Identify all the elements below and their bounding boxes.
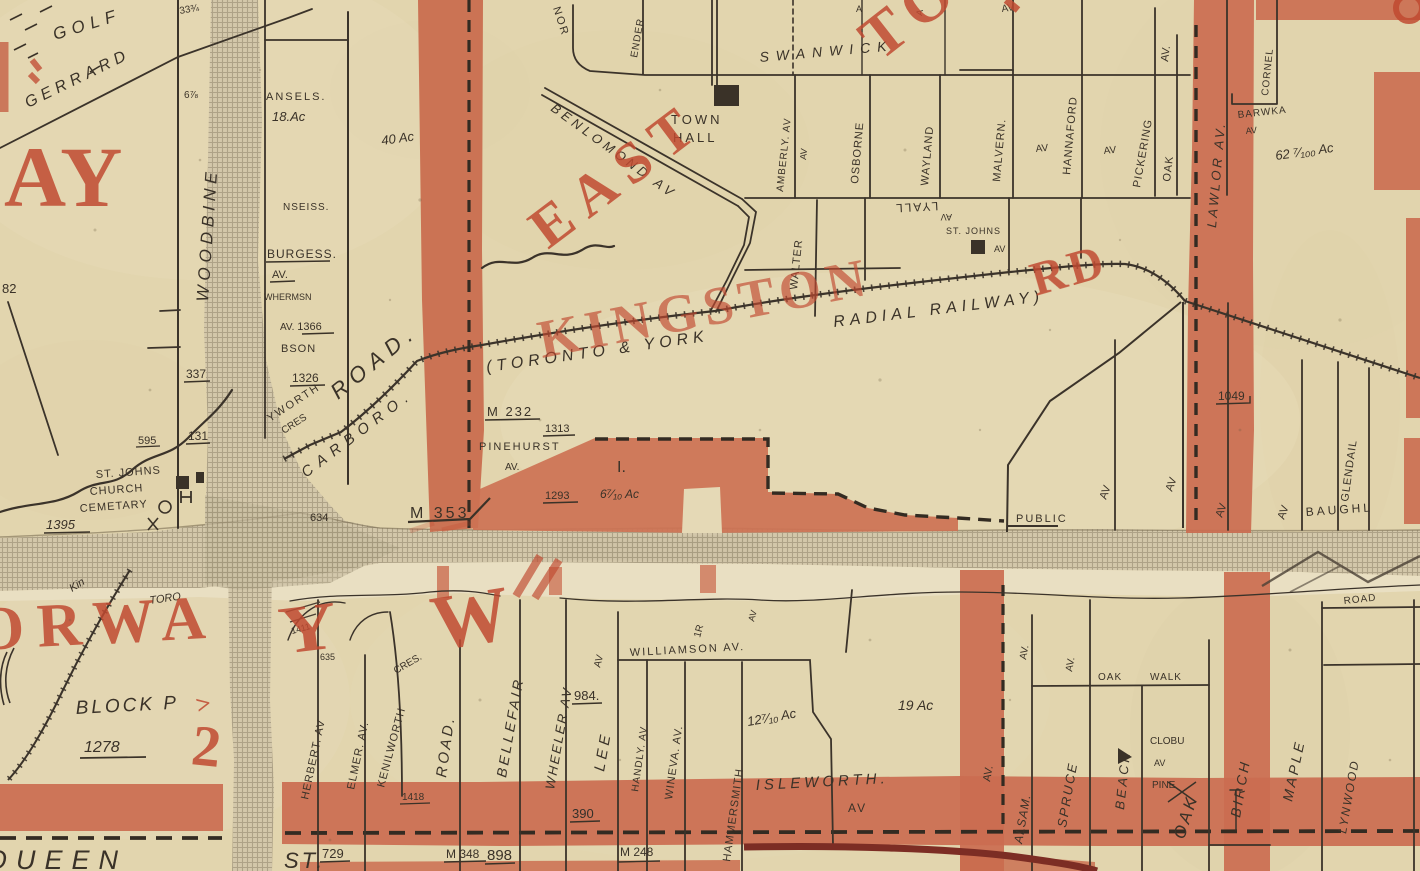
svg-text:898: 898 [487,847,512,864]
svg-text:131: 131 [188,429,208,443]
svg-text:W: W [425,569,516,667]
svg-text:1418: 1418 [402,792,425,803]
svg-text:M 348: M 348 [446,847,480,861]
svg-text:ANSELS.: ANSELS. [266,91,326,103]
svg-text:390: 390 [572,806,594,821]
svg-text:6⅞: 6⅞ [184,90,199,101]
svg-text:82: 82 [2,281,16,296]
svg-text:6⁷⁄₁₀ Ac: 6⁷⁄₁₀ Ac [600,487,639,501]
svg-text:729: 729 [322,846,344,861]
svg-text:AV: AV [1154,758,1165,768]
svg-text:19 Ac: 19 Ac [898,697,933,713]
svg-text:AV: AV [1103,145,1117,157]
svg-text:1395: 1395 [46,517,76,532]
svg-text:1313: 1313 [545,423,569,435]
svg-text:AV.: AV. [272,269,288,281]
svg-text:AV: AV [1245,125,1257,136]
svg-text:634: 634 [310,512,328,524]
svg-text:AV: AV [848,801,867,815]
svg-text:QUEEN: QUEEN [0,845,127,871]
svg-text:AV. 1366: AV. 1366 [280,321,322,333]
svg-text:1278: 1278 [84,739,120,756]
svg-text:1293: 1293 [545,490,569,502]
svg-text:LYALL: LYALL [894,199,939,215]
svg-text:WALK: WALK [1150,672,1182,683]
svg-text:BSON: BSON [281,343,316,355]
svg-text:AV.: AV. [1159,45,1173,62]
svg-text:AV: AV [994,244,1005,254]
svg-text:M 232: M 232 [487,404,533,419]
svg-text:18.Ac: 18.Ac [272,109,306,124]
svg-text:ORWA: ORWA [0,583,220,664]
svg-text:WHERMSN: WHERMSN [264,292,312,302]
svg-text:CLOBU: CLOBU [1150,736,1184,747]
svg-text:ST. JOHNS: ST. JOHNS [946,226,1001,236]
svg-text:595: 595 [138,435,156,447]
svg-text:AV: AV [1035,143,1049,155]
svg-text:NSEISS.: NSEISS. [283,202,329,213]
svg-text:M 248: M 248 [620,845,654,859]
svg-text:984.: 984. [574,688,599,703]
svg-text:AV: AV [798,148,809,160]
svg-text:I.: I. [617,459,626,476]
svg-text:AV: AV [941,212,952,222]
svg-text:PUBLIC: PUBLIC [1016,513,1068,525]
svg-text:PINEHURST: PINEHURST [479,441,561,453]
svg-text:AY: AY [4,129,124,225]
svg-text:ST.: ST. [284,848,325,871]
svg-text:BURGESS.: BURGESS. [267,247,337,261]
svg-text:Y: Y [275,588,342,669]
svg-text:AV.: AV. [505,462,519,473]
svg-text:OAK: OAK [1098,672,1122,683]
svg-text:1049: 1049 [1218,389,1245,403]
svg-text:337: 337 [186,367,206,381]
